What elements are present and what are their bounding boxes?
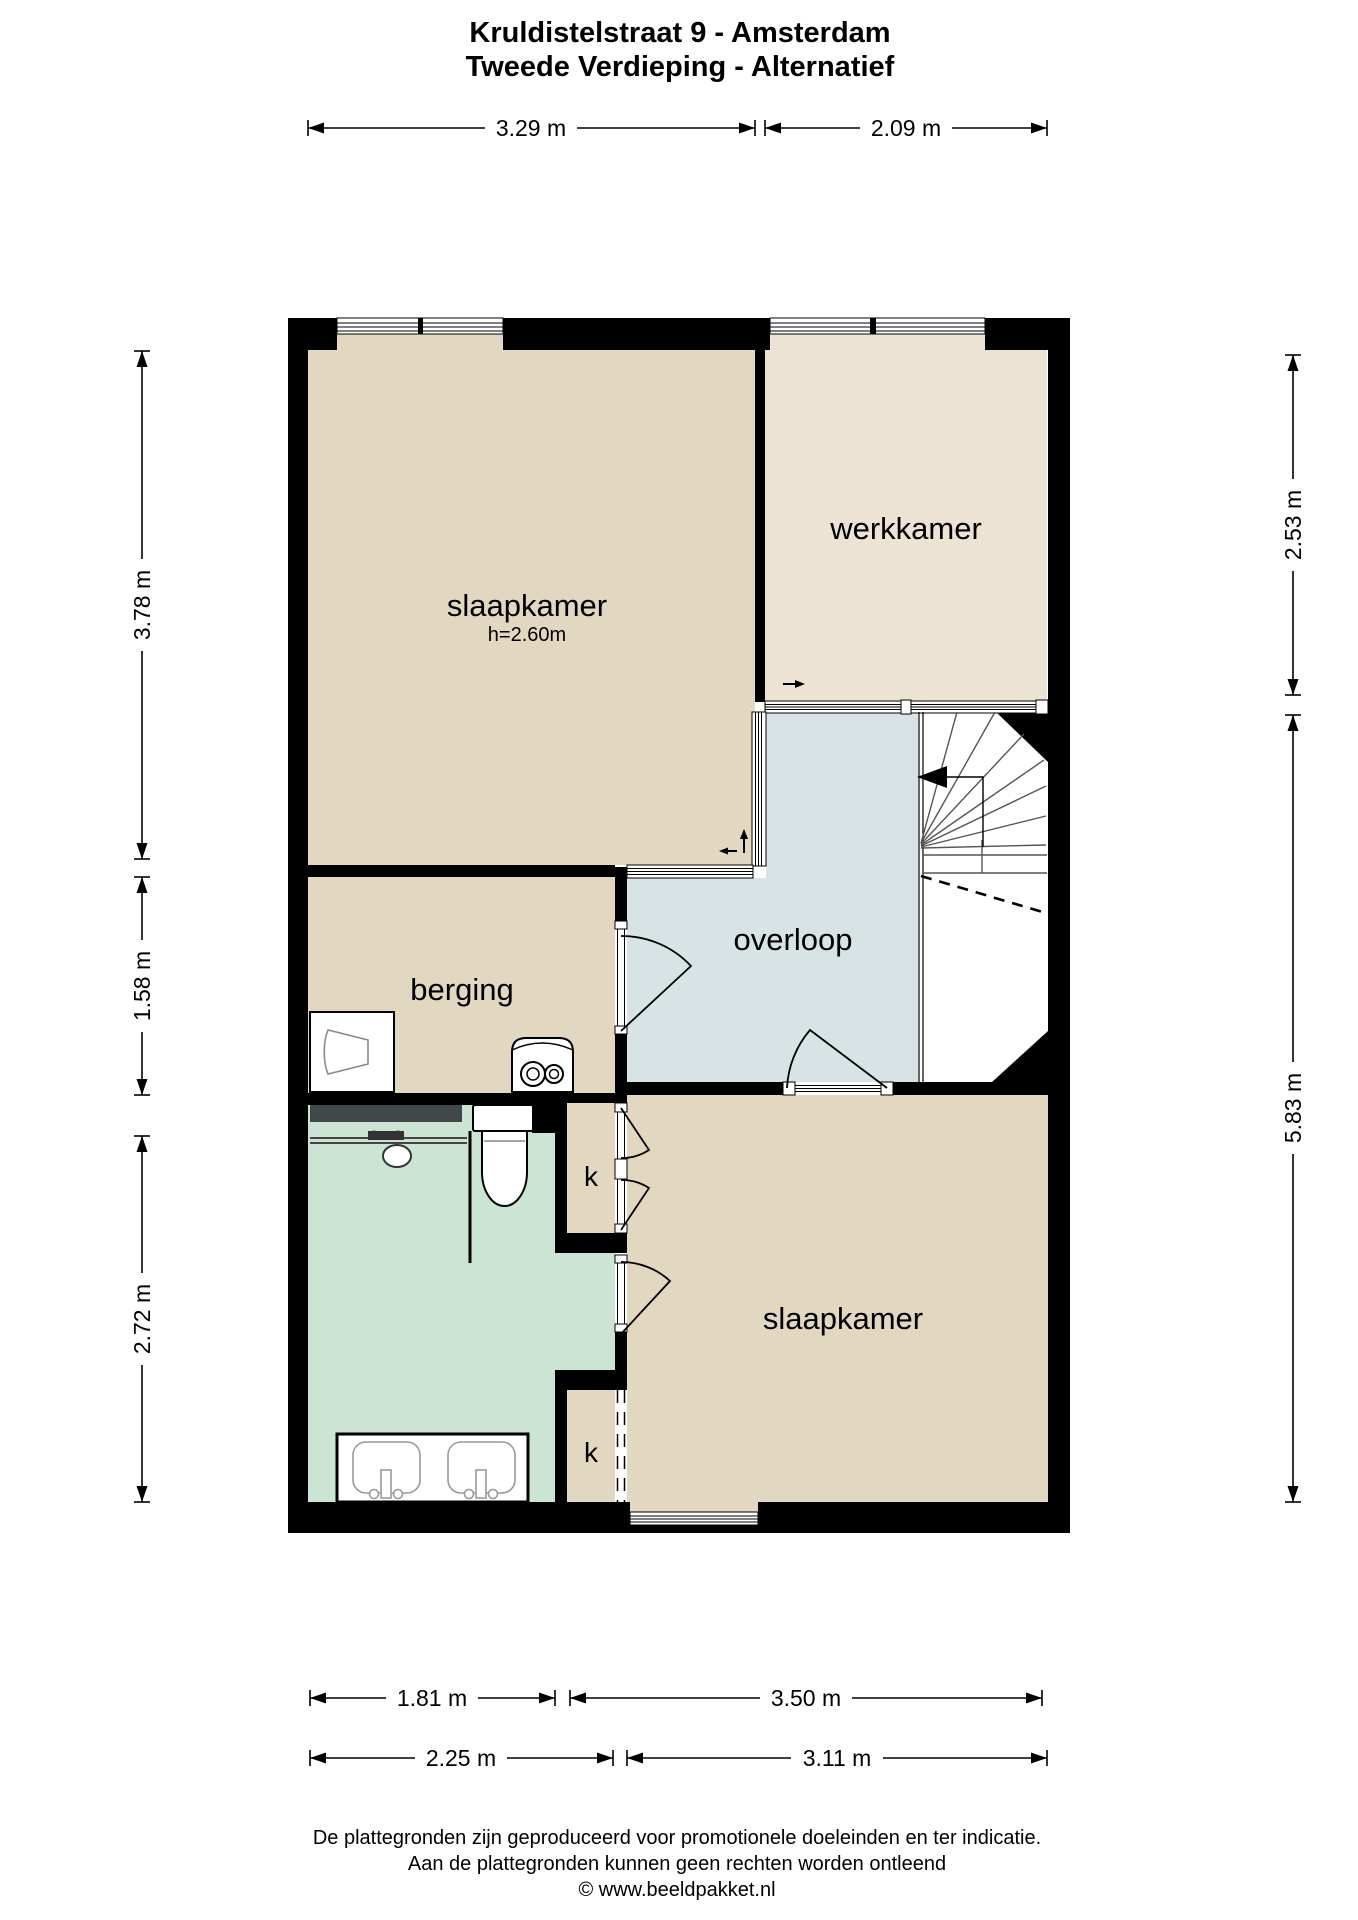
floor-slaapkamer-2	[627, 1095, 1048, 1502]
dim-left-3: 2.72 m	[129, 1136, 155, 1502]
dim-label: 3.78 m	[129, 570, 155, 640]
footer-disclaimer: De plattegronden zijn geproduceerd voor …	[313, 1827, 1041, 1901]
room-label-berging: berging	[410, 972, 513, 1007]
room-label-slaapkamer-1: slaapkamer	[447, 588, 607, 623]
wall-overloop-slaapkamer2-left	[627, 1082, 783, 1095]
double-sink-vanity-icon	[337, 1434, 528, 1502]
dim-label: 2.53 m	[1280, 490, 1306, 560]
dim-label: 2.25 m	[426, 1745, 496, 1771]
floor-overloop-lower	[627, 878, 766, 1082]
window-icon-slaapkamer-1	[337, 318, 503, 334]
dim-bottom1-2: 3.50 m	[570, 1684, 1042, 1712]
room-label-werkkamer: werkkamer	[829, 511, 982, 546]
room-label-slaapkamer-2: slaapkamer	[763, 1301, 923, 1336]
stair-direction-arrow-icon	[917, 766, 983, 847]
wall-berging-post-bottom	[615, 1033, 627, 1093]
window-recess-werkkamer	[770, 334, 985, 350]
floorplan-svg: Kruldistelstraat 9 - Amsterdam Tweede Ve…	[0, 0, 1358, 1920]
dim-right-2: 5.83 m	[1280, 715, 1306, 1502]
dim-bottom2-2: 3.11 m	[627, 1744, 1047, 1772]
window-recess-slaapkamer-2	[630, 1502, 758, 1512]
cabinet-icon	[310, 1012, 394, 1092]
floorplan-page: Kruldistelstraat 9 - Amsterdam Tweede Ve…	[0, 0, 1358, 1920]
wall-closet1-bottom	[555, 1233, 627, 1253]
page-subtitle: Tweede Verdieping - Alternatief	[466, 51, 895, 83]
title-block: Kruldistelstraat 9 - Amsterdam Tweede Ve…	[466, 17, 895, 83]
wall-exterior-left	[288, 318, 308, 1533]
dim-top-1: 3.29 m	[308, 114, 755, 142]
footer-line-2: Aan de plattegronden kunnen geen rechten…	[408, 1853, 946, 1875]
wall-exterior-right	[1048, 318, 1070, 1533]
dim-bottom1-1: 1.81 m	[310, 1684, 555, 1712]
wall-badkamer-door-post	[615, 1332, 627, 1370]
dim-label: 3.50 m	[771, 1685, 841, 1711]
room-label-overloop: overloop	[734, 922, 853, 957]
room-label-closet-2: k	[584, 1437, 599, 1468]
wall-closet1-left	[555, 1093, 567, 1253]
stair-headroom-line	[921, 876, 1046, 913]
room-height-note: h=2.60m	[488, 624, 566, 646]
wall-closet2-top	[555, 1370, 627, 1390]
wall-stair-chamfer-bottom	[992, 1031, 1048, 1082]
wall-berging-badkamer	[308, 1093, 560, 1105]
window-icon-slaapkamer-2	[630, 1512, 758, 1525]
wall-closet1-top	[560, 1093, 627, 1103]
dim-label: 3.29 m	[496, 115, 566, 141]
wall-overloop-slaapkamer2-right	[893, 1082, 1068, 1095]
wall-slaapkamer1-berging	[308, 865, 615, 877]
door-closet-2-open	[618, 1390, 625, 1502]
dim-label: 1.58 m	[129, 951, 155, 1021]
dim-bottom2-1: 2.25 m	[310, 1744, 613, 1772]
footer-line-1: De plattegronden zijn geproduceerd voor …	[313, 1827, 1041, 1849]
glass-wall-slaapkamer1-bottom	[627, 865, 753, 878]
dim-right-1: 2.53 m	[1280, 355, 1306, 695]
dim-label: 3.11 m	[803, 1745, 872, 1771]
window-recess-slaapkamer-1	[337, 334, 503, 350]
stairs-icon	[917, 712, 1047, 1082]
footer-copyright: © www.beeldpakket.nl	[578, 1879, 775, 1901]
wall-slaapkamer1-werkkamer	[755, 350, 765, 702]
wall-berging-post-top	[615, 867, 627, 923]
room-label-closet-1: k	[584, 1161, 599, 1192]
page-title: Kruldistelstraat 9 - Amsterdam	[469, 17, 890, 49]
glass-wall-slaapkamer1-right	[752, 712, 766, 866]
wall-closet2-left	[555, 1390, 567, 1502]
glass-wall-werkkamer-bottom	[765, 700, 1048, 714]
dim-left-1: 3.78 m	[129, 351, 155, 859]
window-icon-werkkamer	[770, 318, 985, 334]
dim-label: 2.72 m	[129, 1284, 155, 1354]
boiler-icon	[512, 1038, 573, 1092]
floor-overloop-upper	[766, 712, 918, 1082]
dim-left-2: 1.58 m	[129, 877, 155, 1095]
dim-label: 5.83 m	[1280, 1073, 1306, 1143]
dim-label: 1.81 m	[397, 1685, 467, 1711]
dim-top-2: 2.09 m	[765, 114, 1047, 142]
floor-badkamer-nook	[555, 1253, 615, 1370]
dim-label: 2.09 m	[871, 115, 941, 141]
